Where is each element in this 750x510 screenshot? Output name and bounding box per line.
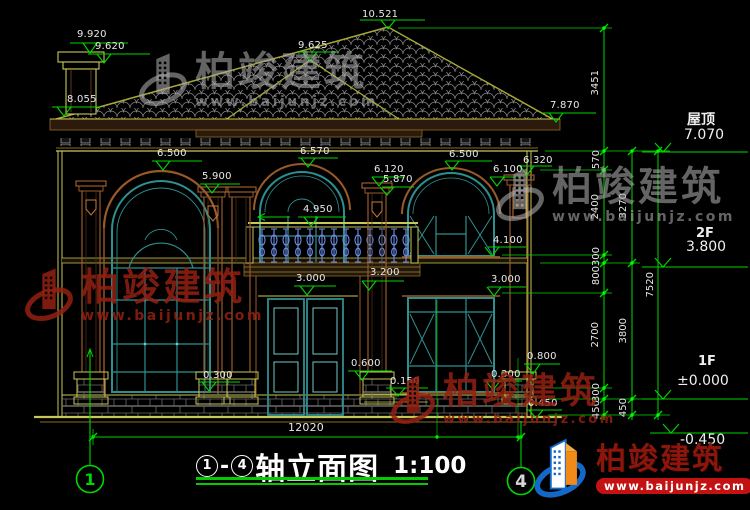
dim-overall-width: 12020 [288,421,324,434]
chain-floor2-total: 3270 [618,193,629,218]
chain-floor1-total: 3800 [618,318,629,343]
title-axis-start: 1 [196,455,218,477]
dim-pier-right-top: 0.800 [527,351,557,362]
level-floor2-value: 3.800 [686,239,726,255]
dim-plinth: 0.450 [528,398,558,409]
dim-window-right-head: 3.000 [491,274,521,285]
level-floor1-label: 1F [698,354,716,369]
dim-balcony-floor: 3.200 [370,267,400,278]
dim-chimney-top: 9.920 [77,29,107,40]
chain-plinth-a: 450 [591,400,602,419]
chain-parapet: 570 [591,150,602,169]
title-axis-end: 4 [231,455,253,477]
dim-pedestal-top: 0.600 [351,358,381,369]
title-separator: - [220,454,229,479]
dim-window-left-top: 6.500 [157,148,187,159]
dim-chimney-cap: 9.620 [95,41,125,52]
window-center [254,164,350,262]
dim-eave-left: 8.055 [67,94,97,105]
axis-bubble-4: 4 [514,472,528,492]
cad-elevation-screenshot: 10.521 9.920 9.620 8.055 9.625 7.870 6.5… [0,0,750,510]
dim-window-right-top: 6.500 [449,149,479,160]
dim-capital-left: 5.900 [202,171,232,182]
dim-terrace: 0.150 [390,376,420,387]
window-left [104,171,218,395]
chain-plinth-b: 450 [618,398,629,417]
chain-band-upper: 300 [591,247,602,266]
company-logo-url: www.baijunjz.com [596,478,750,494]
level-roof-label: 屋顶 [687,109,715,129]
entrance-door [256,276,360,415]
dim-sill-left: 0.300 [203,370,233,381]
drawing-title: 1 - 4 轴立面图 1:100 [196,444,466,488]
dim-bay-apex: 9.625 [298,40,328,51]
level-floor1-value: ±0.000 [677,373,729,389]
dim-capital-right: 6.320 [523,155,553,166]
title-scale: 1:100 [393,453,466,479]
dim-door-side: 0.300 [491,369,521,380]
chain-floor1-window: 2700 [590,322,601,347]
dim-capital-center-lower: 5.870 [383,174,413,185]
dim-ridge: 10.521 [362,9,398,20]
company-logo-icon [534,438,590,500]
chain-spandrel: 800 [591,266,602,285]
title-underline-1 [196,477,428,480]
dim-window-right-spring: 6.100 [493,164,523,175]
dim-door-head: 3.000 [296,273,326,284]
elevation-drawing [0,0,750,510]
chain-roof-height: 3451 [590,70,601,95]
company-logo: 柏竣建筑 www.baijunjz.com [534,438,750,500]
company-logo-brand: 柏竣建筑 [596,445,724,475]
dim-balcony-rail: 4.950 [303,204,333,215]
chain-floor2-window: 2400 [590,194,601,219]
dim-eave-right: 7.870 [550,100,580,111]
dim-window-center-top: 6.570 [300,146,330,157]
level-roof-value: 7.070 [684,127,724,143]
dim-window-right-sill: 4.100 [493,235,523,246]
title-underline-2 [196,483,428,485]
title-text: 轴立面图 [255,444,379,488]
chain-total-height: 7520 [645,272,656,297]
axis-bubble-1: 1 [83,470,97,489]
